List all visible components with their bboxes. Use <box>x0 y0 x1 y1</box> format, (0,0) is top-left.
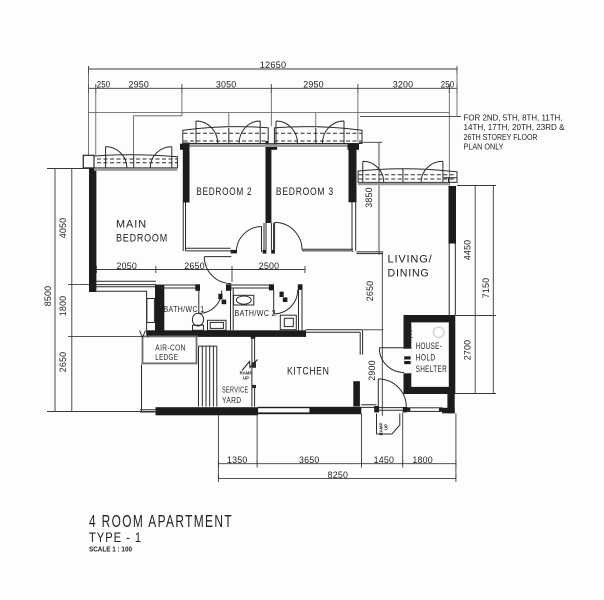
svg-text:3650: 3650 <box>299 455 320 466</box>
svg-text:YARD: YARD <box>222 395 242 405</box>
svg-text:3200: 3200 <box>393 80 414 91</box>
svg-text:2650: 2650 <box>58 352 69 373</box>
svg-text:14TH, 17TH, 20TH, 23RD &: 14TH, 17TH, 20TH, 23RD & <box>464 122 565 132</box>
svg-text:1800: 1800 <box>412 455 433 466</box>
svg-text:2650: 2650 <box>365 281 376 302</box>
svg-text:SHELTER: SHELTER <box>416 364 448 374</box>
svg-text:1800: 1800 <box>58 296 69 317</box>
svg-text:2500: 2500 <box>259 261 280 272</box>
svg-text:8250: 8250 <box>328 470 349 481</box>
svg-text:HOUSE-: HOUSE- <box>416 341 443 351</box>
svg-text:8500: 8500 <box>43 286 54 307</box>
svg-text:1350: 1350 <box>227 455 248 466</box>
svg-text:2950: 2950 <box>129 80 150 91</box>
svg-text:2950: 2950 <box>303 80 324 91</box>
svg-text:4 ROOM APARTMENT: 4 ROOM APARTMENT <box>89 511 233 531</box>
svg-text:KITCHEN: KITCHEN <box>287 366 330 378</box>
svg-text:LIVING/: LIVING/ <box>388 253 433 265</box>
svg-text:UP: UP <box>384 424 389 430</box>
svg-text:SCALE 1 : 100: SCALE 1 : 100 <box>89 547 132 554</box>
svg-text:E: E <box>406 329 413 341</box>
svg-text:TYPE - 1: TYPE - 1 <box>89 529 142 545</box>
svg-text:UP: UP <box>243 375 249 380</box>
svg-text:BEDROOM 2: BEDROOM 2 <box>196 186 252 198</box>
svg-text:3850: 3850 <box>364 187 375 208</box>
svg-text:MAIN: MAIN <box>116 219 147 231</box>
svg-text:12650: 12650 <box>260 60 287 71</box>
svg-text:DINING: DINING <box>388 267 430 279</box>
svg-text:1450: 1450 <box>374 455 395 466</box>
svg-text:2650: 2650 <box>184 261 205 272</box>
svg-text:4050: 4050 <box>58 218 69 239</box>
svg-text:BEDROOM 3: BEDROOM 3 <box>276 186 334 198</box>
svg-text:AIR-CON: AIR-CON <box>155 342 186 352</box>
svg-text:4450: 4450 <box>463 240 474 261</box>
svg-text:FOR 2ND, 5TH, 8TH, 11TH,: FOR 2ND, 5TH, 8TH, 11TH, <box>464 113 563 123</box>
svg-text:PLAN ONLY: PLAN ONLY <box>464 141 504 151</box>
svg-text:BATH/WC 2: BATH/WC 2 <box>235 308 277 318</box>
svg-text:BEDROOM: BEDROOM <box>116 233 168 245</box>
svg-text:7150: 7150 <box>481 278 492 299</box>
svg-text:2050: 2050 <box>117 261 138 272</box>
svg-text:26TH STOREY FLOOR: 26TH STOREY FLOOR <box>464 132 538 142</box>
svg-text:VI: VI <box>139 329 150 341</box>
svg-text:250: 250 <box>441 80 455 91</box>
svg-text:SERVICE: SERVICE <box>222 384 249 394</box>
svg-text:BATH/WC 1: BATH/WC 1 <box>164 304 205 314</box>
svg-text:LEDGE: LEDGE <box>155 352 178 362</box>
svg-text:2900: 2900 <box>367 360 378 381</box>
svg-text:3050: 3050 <box>216 80 237 91</box>
svg-text:250: 250 <box>97 80 111 91</box>
svg-text:HOLD: HOLD <box>416 352 436 362</box>
svg-text:2700: 2700 <box>463 340 474 361</box>
